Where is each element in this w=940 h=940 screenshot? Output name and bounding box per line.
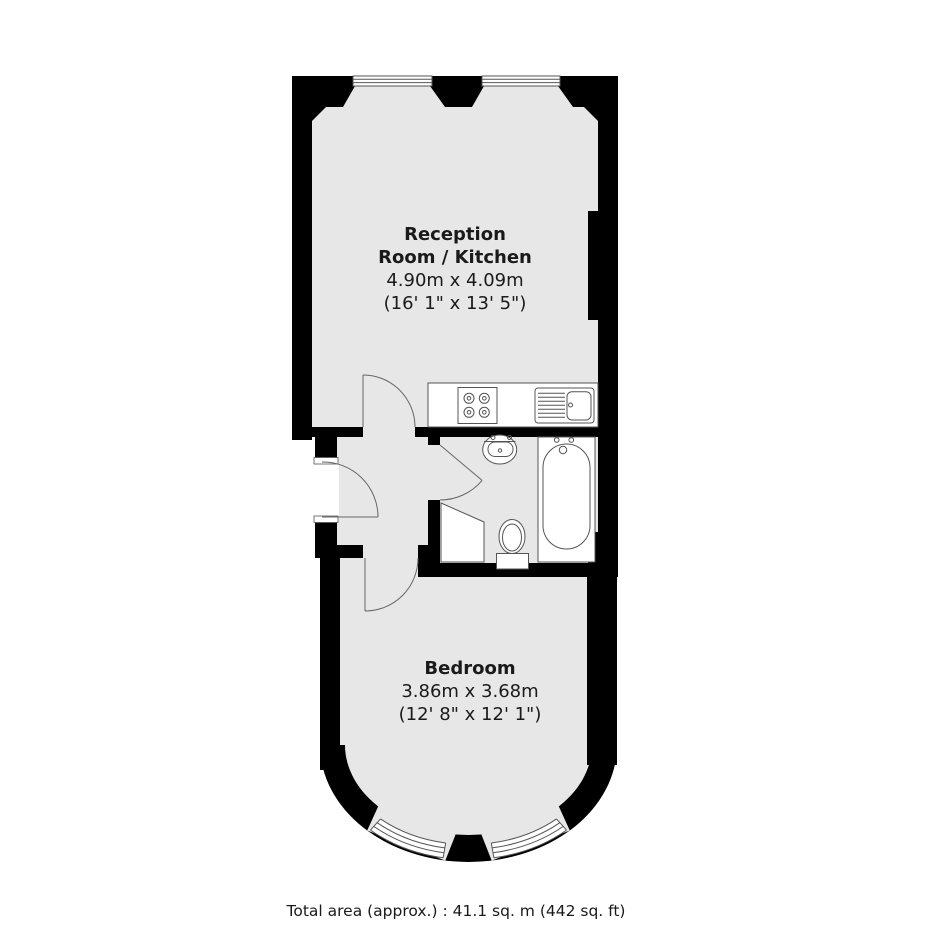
bedroom-doorway (363, 545, 418, 558)
toilet-cistern (497, 554, 529, 570)
window-splay-right (472, 86, 573, 107)
bathtub-inner (543, 444, 590, 549)
bedroom-dims-metric: 3.86m x 3.68m (401, 681, 538, 702)
entrance-doorway (313, 462, 339, 518)
reception-label-line1: Reception (404, 224, 506, 245)
hall-floor (337, 437, 428, 545)
bathtub (538, 437, 595, 562)
sink-bowl (567, 392, 591, 420)
reception-doorway (363, 427, 415, 437)
bedroom-label: Bedroom (424, 658, 515, 679)
bedroom-dims-imperial: (12' 8" x 12' 1") (399, 704, 542, 725)
bathroom-doorway (428, 445, 440, 500)
floorplan-page: Reception Room / Kitchen 4.90m x 4.09m (… (0, 0, 940, 940)
total-area-label: Total area (approx.) : 41.1 sq. m (442 s… (286, 902, 626, 920)
floorplan: Reception Room / Kitchen 4.90m x 4.09m (… (0, 0, 940, 940)
top-window-left (353, 76, 432, 86)
kitchen-fixtures (428, 383, 598, 427)
reception-label-line2: Room / Kitchen (378, 247, 532, 268)
reception-dims-metric: 4.90m x 4.09m (386, 270, 523, 291)
hob (458, 388, 497, 424)
reception-dims-imperial: (16' 1" x 13' 5") (384, 293, 527, 314)
chimney-pier (588, 211, 598, 320)
wash-basin (483, 435, 517, 464)
top-window-right (482, 76, 560, 86)
sink-with-drainer (535, 388, 594, 423)
window-splay-left (343, 86, 445, 107)
